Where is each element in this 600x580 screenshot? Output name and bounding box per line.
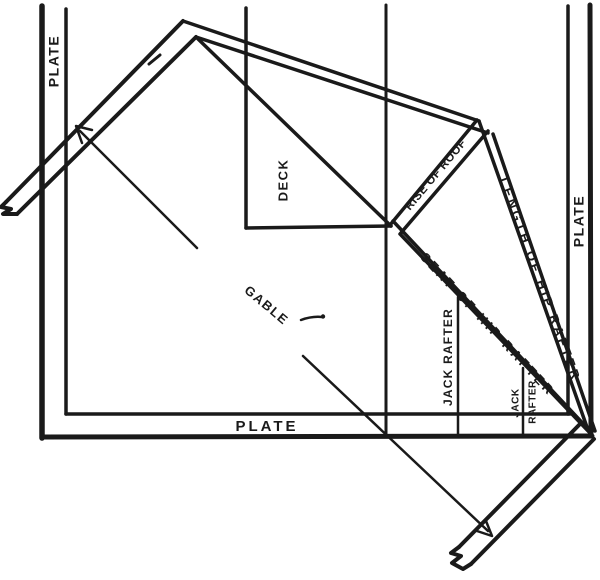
label-jack-small: JACK: [511, 388, 522, 418]
gable-rafter-band: [1, 21, 196, 214]
gable-pointer-dot: [321, 314, 325, 318]
roof-framing-diagram: PLATE DECK GABLE RISE OF ROOF LENGTH OF …: [0, 0, 600, 580]
deck-lines: [246, 8, 391, 228]
bottom-rafter-band: [451, 424, 594, 569]
label-plate-bottom: PLATE: [235, 418, 298, 435]
label-rafter-small: RAFTER: [528, 380, 539, 424]
roof-slope-band: [183, 21, 488, 133]
label-jack-rafter: JACK RAFTER: [441, 308, 455, 406]
peak-to-deck-line: [196, 37, 391, 226]
diagram-canvas: PLATE DECK GABLE RISE OF ROOF LENGTH OF …: [0, 0, 600, 580]
label-plate-right: PLATE: [571, 195, 587, 247]
label-gable: GABLE: [242, 282, 292, 328]
plate-bottom-lines: [42, 414, 592, 437]
label-plate-left: PLATE: [46, 35, 62, 87]
label-rise-of-roof: RISE OF ROOF: [403, 137, 469, 212]
gable-pointer-dash: [301, 317, 322, 320]
label-deck: DECK: [275, 159, 290, 202]
